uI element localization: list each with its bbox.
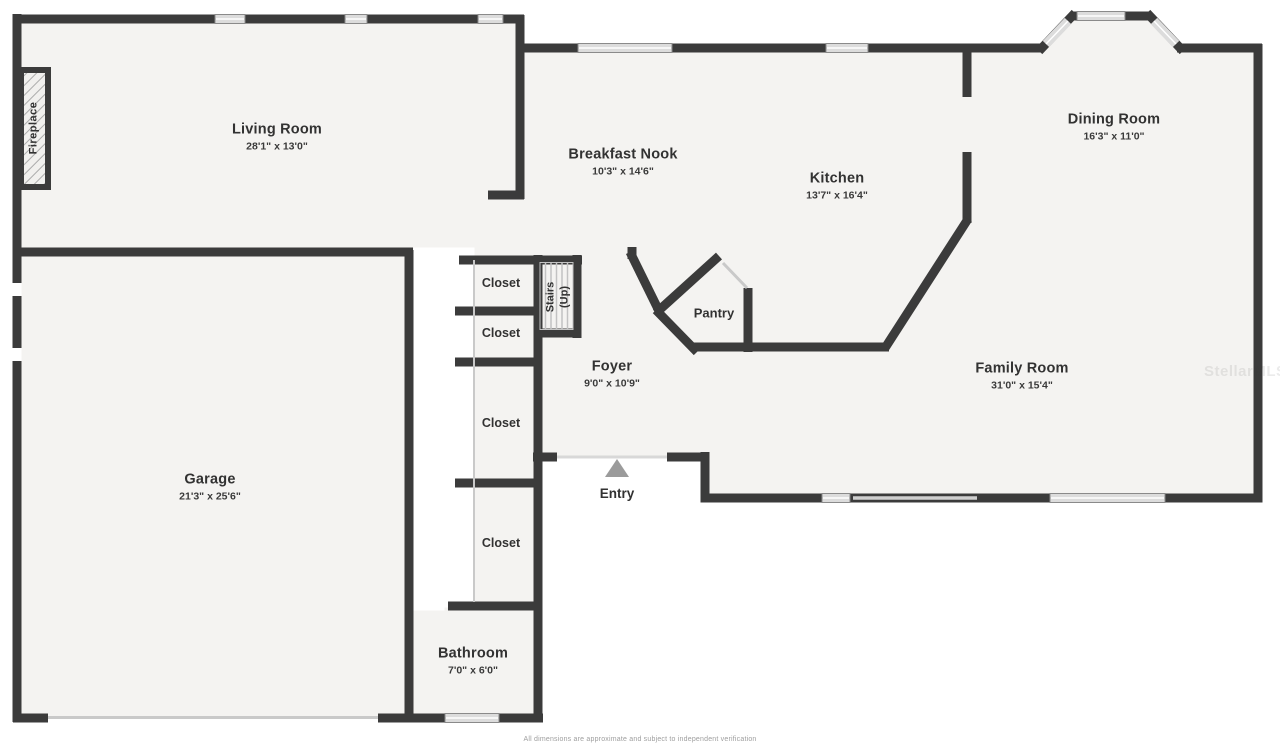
fireplace bbox=[21, 70, 48, 187]
exterior-strip bbox=[414, 248, 475, 608]
floor-plan-page: Living Room 28'1" x 13'0" Breakfast Nook… bbox=[0, 0, 1280, 750]
floor-plan-drawing bbox=[0, 0, 1280, 750]
disclaimer-text: All dimensions are approximate and subje… bbox=[0, 736, 1280, 743]
watermark: StellarMLS bbox=[1204, 363, 1280, 380]
stairs bbox=[540, 263, 573, 330]
floor-area bbox=[17, 14, 1258, 718]
entry-arrow-icon bbox=[605, 459, 629, 477]
